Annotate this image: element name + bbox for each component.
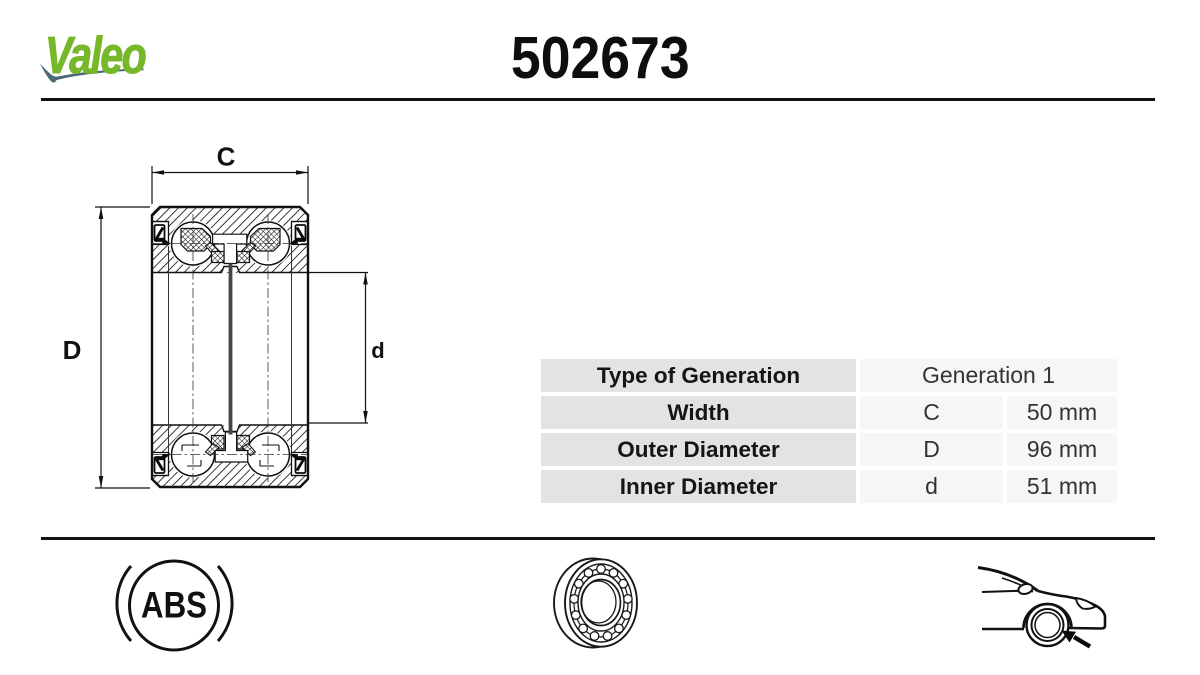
svg-text:d: d xyxy=(371,338,384,363)
svg-text:C: C xyxy=(217,142,236,172)
svg-text:D: D xyxy=(63,335,82,365)
svg-text:ABS: ABS xyxy=(141,585,207,626)
